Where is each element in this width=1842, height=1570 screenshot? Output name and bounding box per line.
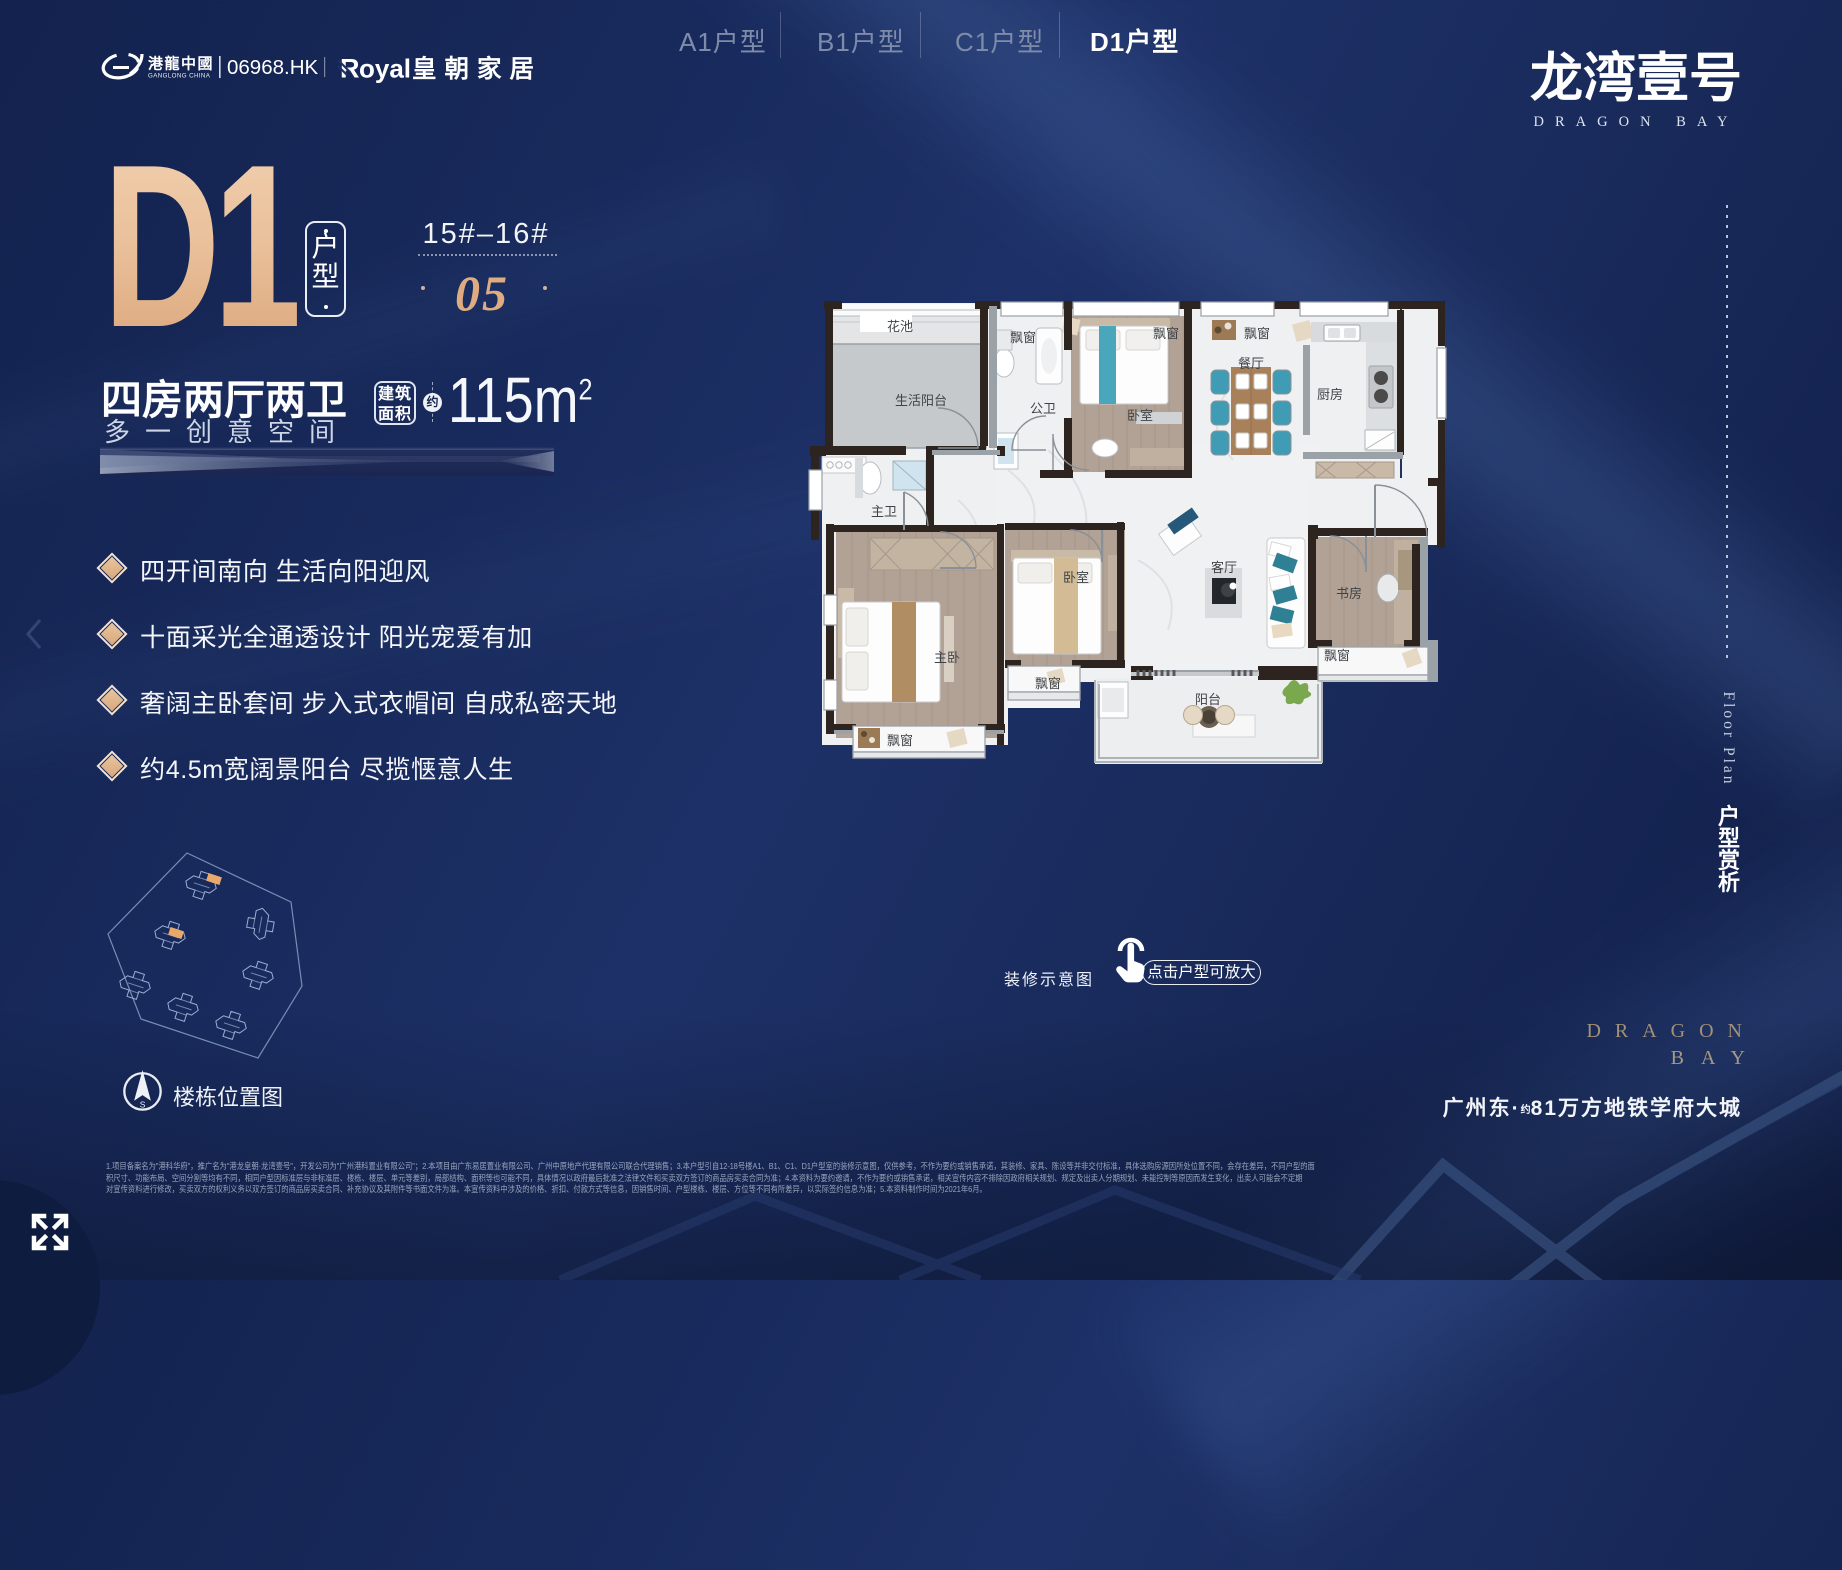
svg-text:飘窗: 飘窗 [887, 733, 913, 748]
svg-text:生活阳台: 生活阳台 [895, 393, 947, 408]
svg-text:R: R [340, 54, 360, 84]
svg-text:oyal: oyal [359, 54, 411, 84]
svg-text:皇朝家居: 皇朝家居 [412, 54, 542, 83]
svg-text:主卧: 主卧 [934, 650, 960, 665]
svg-text:卧室: 卧室 [1063, 570, 1089, 585]
svg-text:港龍中國: 港龍中國 [148, 55, 214, 73]
svg-text:餐厅: 餐厅 [1238, 356, 1264, 371]
svg-text:飘窗: 飘窗 [1010, 330, 1036, 345]
svg-text:GANGLONG CHINA: GANGLONG CHINA [148, 73, 211, 80]
svg-text:06968.HK: 06968.HK [227, 56, 319, 79]
svg-text:厨房: 厨房 [1317, 387, 1343, 402]
svg-text:阳台: 阳台 [1195, 692, 1221, 707]
svg-text:飘窗: 飘窗 [1244, 326, 1270, 341]
svg-text:书房: 书房 [1336, 586, 1362, 601]
svg-text:主卫: 主卫 [871, 504, 897, 519]
svg-text:公卫: 公卫 [1030, 401, 1056, 416]
svg-text:飘窗: 飘窗 [1324, 648, 1350, 663]
svg-text:客厅: 客厅 [1211, 560, 1237, 575]
svg-text:飘窗: 飘窗 [1153, 326, 1179, 341]
svg-text:飘窗: 飘窗 [1035, 676, 1061, 691]
svg-text:卧室: 卧室 [1127, 408, 1153, 423]
svg-text:花池: 花池 [887, 319, 913, 334]
svg-text:S: S [140, 1099, 146, 1109]
